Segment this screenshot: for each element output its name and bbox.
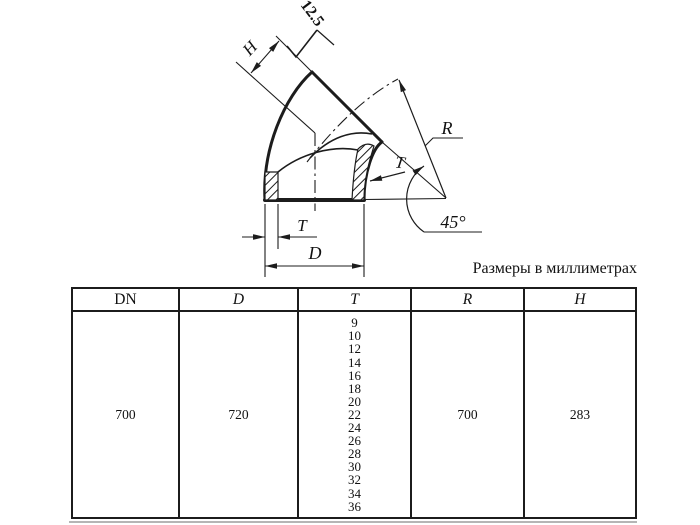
t-value: 18 <box>299 382 410 395</box>
cell-dn: 700 <box>72 311 179 518</box>
left-wall-section <box>265 172 278 200</box>
dim-R: R <box>399 80 463 198</box>
col-header-dn: DN <box>72 288 179 311</box>
dim-T-leader-line <box>370 172 405 181</box>
right-wall-section <box>352 144 374 200</box>
roughness-mark: 12.5 <box>287 0 334 57</box>
face-plane-to-vertex <box>382 142 446 198</box>
dim-H-label: H <box>238 36 262 60</box>
elbow-technical-drawing: H 12.5 R T 45° <box>0 0 700 285</box>
units-note: Размеры в миллиметрах <box>71 260 637 278</box>
t-value: 32 <box>299 473 410 486</box>
cropped-next-row-edge <box>69 521 637 523</box>
cell-d: 720 <box>179 311 298 518</box>
t-value: 34 <box>299 487 410 500</box>
dim-T-leader: T <box>370 152 407 181</box>
t-value: 12 <box>299 342 410 355</box>
roughness-check-icon <box>287 30 317 57</box>
col-header-h: H <box>524 288 636 311</box>
dim-H: H <box>238 36 279 73</box>
col-header-r: R <box>411 288 524 311</box>
col-header-t: T <box>298 288 411 311</box>
dimensions-table: DN D T R H 700 720 910121416182022242628… <box>71 287 637 519</box>
dim-R-radial-line <box>399 80 446 198</box>
bore-curve-lower <box>278 149 358 172</box>
center-plane-extension <box>236 62 315 133</box>
cell-r: 700 <box>411 311 524 518</box>
table-data-row: 700 720 91012141618202224262830323436 70… <box>72 311 636 518</box>
t-value: 16 <box>299 369 410 382</box>
dim-R-leader-shelf <box>425 138 463 146</box>
drawing-sheet: H 12.5 R T 45° <box>0 0 700 525</box>
bottom-plane-to-vertex <box>364 199 446 200</box>
t-value: 20 <box>299 395 410 408</box>
section-hatching <box>265 144 374 200</box>
cell-t-values: 91012141618202224262830323436 <box>298 311 411 518</box>
col-header-d: D <box>179 288 298 311</box>
cell-h: 283 <box>524 311 636 518</box>
t-value: 36 <box>299 500 410 513</box>
roughness-value-label: 12.5 <box>297 0 327 30</box>
end-face-line <box>312 72 382 142</box>
angle-label: 45° <box>440 212 465 232</box>
roughness-tail <box>317 30 334 45</box>
dim-R-label: R <box>441 118 453 138</box>
table-header-row: DN D T R H <box>72 288 636 311</box>
dim-T-bottom-label: T <box>297 216 308 235</box>
t-value: 14 <box>299 356 410 369</box>
